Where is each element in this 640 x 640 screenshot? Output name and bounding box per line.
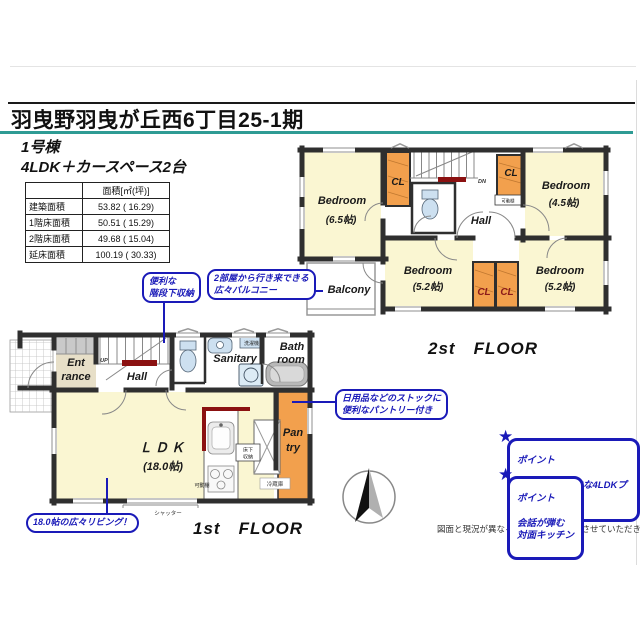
table-row: 2階床面積 49.68 ( 15.04) [26, 231, 170, 247]
callout-line [292, 401, 336, 403]
hall1-label: Hall [127, 371, 148, 383]
bedroom2-label: Bedroom [542, 180, 591, 192]
hall2-label: Hall [471, 215, 492, 227]
vent-marks [178, 329, 288, 332]
closet-label: CL [500, 287, 513, 298]
washing-machine-icon [239, 364, 263, 386]
bedroom3-label: Bedroom [404, 265, 453, 277]
toilet-tank-icon [422, 190, 438, 199]
bedroom1-label: Bedroom [318, 195, 367, 207]
floor-storage-label: 床下 [243, 447, 253, 454]
closet-label: CL [477, 287, 490, 298]
table-header-row: 面積[㎡(坪)] [26, 183, 170, 199]
callout-line [106, 478, 108, 514]
ldk-label: ＬＤＫ [139, 440, 187, 455]
ldk-size: (18.0帖) [143, 460, 183, 473]
floor-storage-label: 収納 [243, 454, 253, 461]
row-label: 延床面積 [26, 247, 83, 263]
floorplan-flyer: { "header": { "title": "羽曳野羽曳が丘西6丁目25-1期… [0, 0, 640, 640]
plan-type: 4LDK＋カースペース2台 [21, 156, 186, 177]
point-box-kitchen: ポイント 会話が弾む 対面キッチン [507, 476, 584, 560]
closet-pair [473, 262, 518, 309]
bedroom3-size: (5.2帖) [413, 281, 444, 293]
shutter-label: シャッター [154, 509, 182, 517]
point-body: 会話が弾む 対面キッチン [517, 518, 574, 543]
north-compass-icon [340, 462, 400, 530]
closet-label: CL [504, 168, 517, 179]
sanitary-label: Sanitary [213, 353, 257, 365]
pantry-label: Pan [283, 427, 303, 439]
title-underline [0, 131, 633, 134]
row-value: 50.51 ( 15.29) [83, 215, 170, 231]
callout-pantry: 日用品などのストックに 便利なパントリー付き [335, 389, 448, 420]
stairs-up-label: UP [100, 358, 108, 364]
bedroom4-label: Bedroom [536, 265, 585, 277]
bedroom4-size: (5.2帖) [545, 281, 576, 293]
callout-balcony: 2部屋から行き来できる 広々バルコニー [207, 269, 316, 300]
table-row: 建築面積 53.82 ( 16.29) [26, 199, 170, 215]
stairs-down [410, 150, 478, 178]
bedroom-4-5 [525, 150, 604, 236]
row-label: 建築面積 [26, 199, 83, 215]
row-value: 100.19 ( 30.33) [83, 247, 170, 263]
point-title: ポイント [517, 493, 574, 505]
toilet-room [412, 183, 455, 233]
toilet-icon [180, 341, 196, 372]
callout-line [163, 301, 165, 343]
area-table: 面積[㎡(坪)] 建築面積 53.82 ( 16.29) 1階床面積 50.51… [25, 182, 170, 263]
movable-shelf-label: 可動棚 [502, 198, 515, 205]
callout-living: 18.0帖の広々リビング！ [26, 513, 139, 533]
entrance-label: rance [61, 371, 90, 383]
bedroom1-size: (6.5帖) [326, 214, 357, 226]
row-value: 49.68 ( 15.04) [83, 231, 170, 247]
floor2-plan: 可動棚 Bedroom (6.5帖) Bedroom (4.5帖) Bedroo… [295, 143, 625, 338]
washer-label: 洗濯機 [244, 340, 259, 347]
table-row: 延床面積 100.19 ( 30.33) [26, 247, 170, 263]
bedroom2-size: (4.5帖) [549, 197, 580, 209]
counter-edge [202, 407, 206, 451]
closet-label: CL [391, 177, 404, 188]
stair-rail [122, 360, 157, 366]
washbasin-icon [208, 338, 232, 353]
stair-rail [438, 177, 466, 182]
balcony-label: Balcony [328, 284, 372, 296]
bathroom-label: Bath [280, 341, 305, 353]
counter-edge [202, 407, 250, 411]
floor1-plan: UP 洗濯機 床下 収納 冷蔵庫 可動棚 [8, 328, 323, 528]
row-value: 53.82 ( 16.29) [83, 199, 170, 215]
floor2-caption: 2st FLOOR [428, 334, 538, 359]
bathroom-label: room [277, 354, 305, 366]
entrance-label: Ent [67, 357, 86, 369]
star-icon: ★ [498, 428, 513, 445]
floor1-caption: 1st FLOOR [193, 514, 303, 539]
entrance-approach [10, 340, 53, 412]
table-row: 1階床面積 50.51 ( 15.29) [26, 215, 170, 231]
movable-shelf-label: 可動棚 [194, 482, 209, 489]
table-corner-cell [26, 183, 83, 199]
star-icon: ★ [498, 466, 513, 483]
area-col-header: 面積[㎡(坪)] [83, 183, 170, 199]
row-label: 2階床面積 [26, 231, 83, 247]
page-top-edge [10, 66, 636, 67]
page-title: 羽曳野羽曳が丘西6丁目25-1期 [11, 104, 304, 134]
building-number: 1号棟 [21, 136, 59, 157]
fridge-label: 冷蔵庫 [267, 480, 284, 488]
row-label: 1階床面積 [26, 215, 83, 231]
point-title: ポイント [517, 455, 630, 467]
pantry-label: try [286, 442, 301, 454]
callout-stairs-storage: 便利な 階段下収納 [142, 272, 201, 303]
stairs-dn-label: DN [478, 179, 487, 185]
